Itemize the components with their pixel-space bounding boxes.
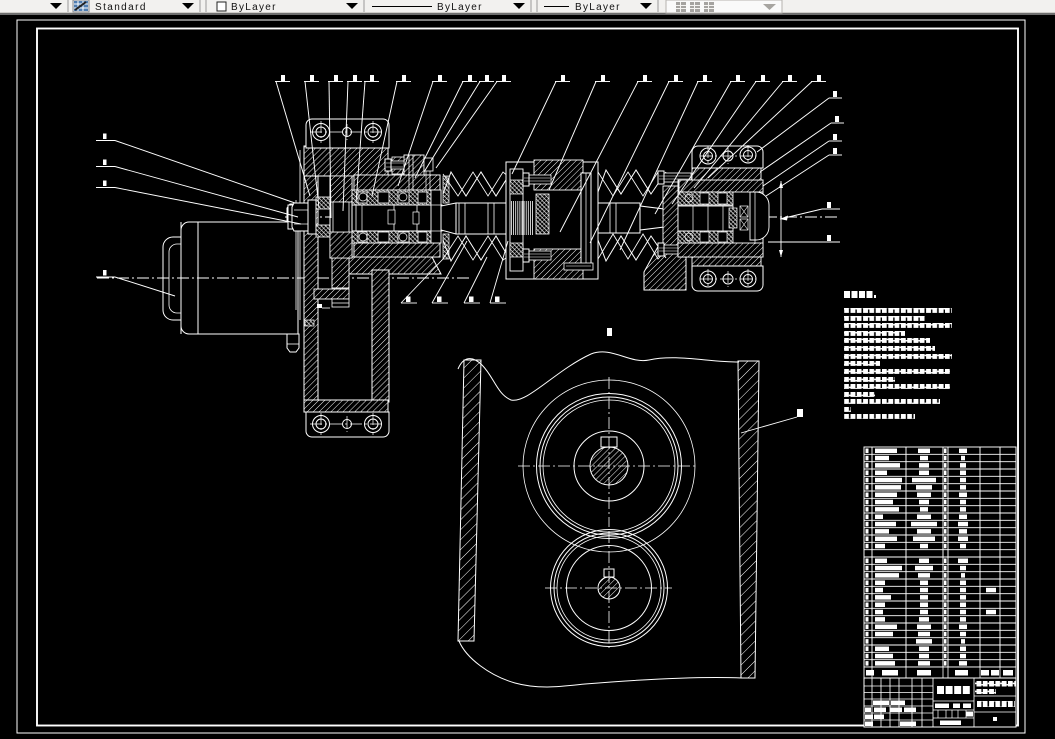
svg-text:ByLayer: ByLayer <box>437 2 483 13</box>
svg-text:ByLayer: ByLayer <box>575 2 621 13</box>
svg-text:ByLayer: ByLayer <box>231 2 277 13</box>
svg-text:Standard: Standard <box>95 2 147 13</box>
